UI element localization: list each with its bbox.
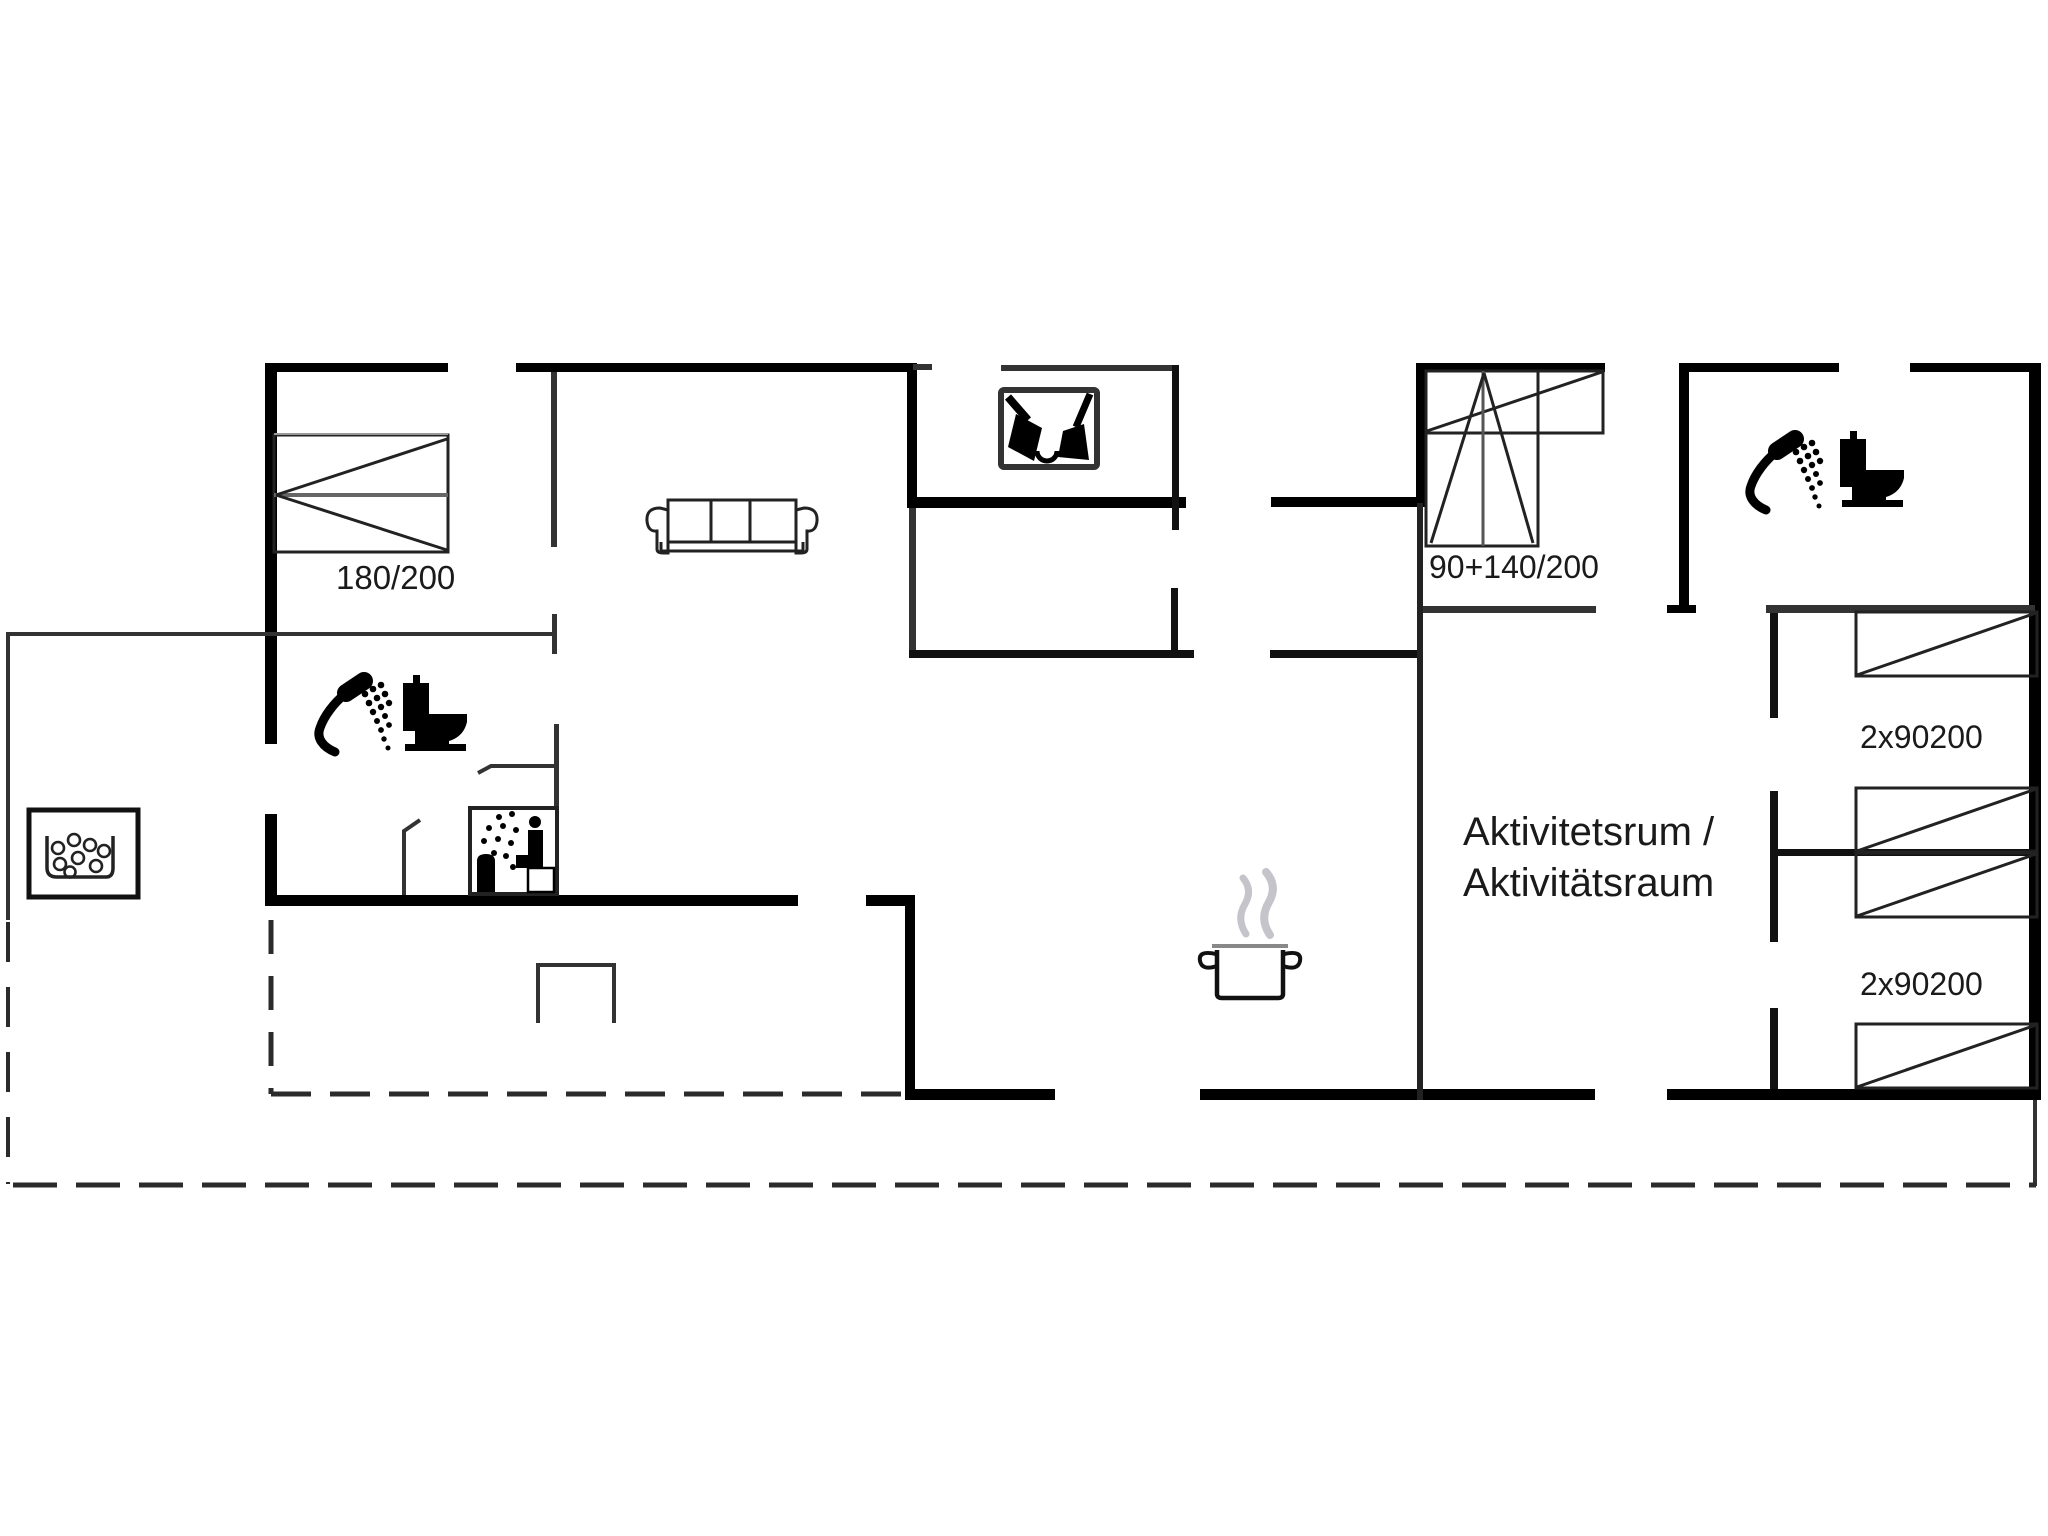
svg-text:2x90200: 2x90200 <box>1860 719 1983 755</box>
svg-text:Aktivitetsrum /: Aktivitetsrum / <box>1463 810 1715 854</box>
svg-text:180/200: 180/200 <box>336 559 455 596</box>
svg-text:90+140/200: 90+140/200 <box>1429 549 1599 585</box>
svg-text:Aktivitätsraum: Aktivitätsraum <box>1463 861 1714 905</box>
svg-text:2x90200: 2x90200 <box>1860 966 1983 1002</box>
